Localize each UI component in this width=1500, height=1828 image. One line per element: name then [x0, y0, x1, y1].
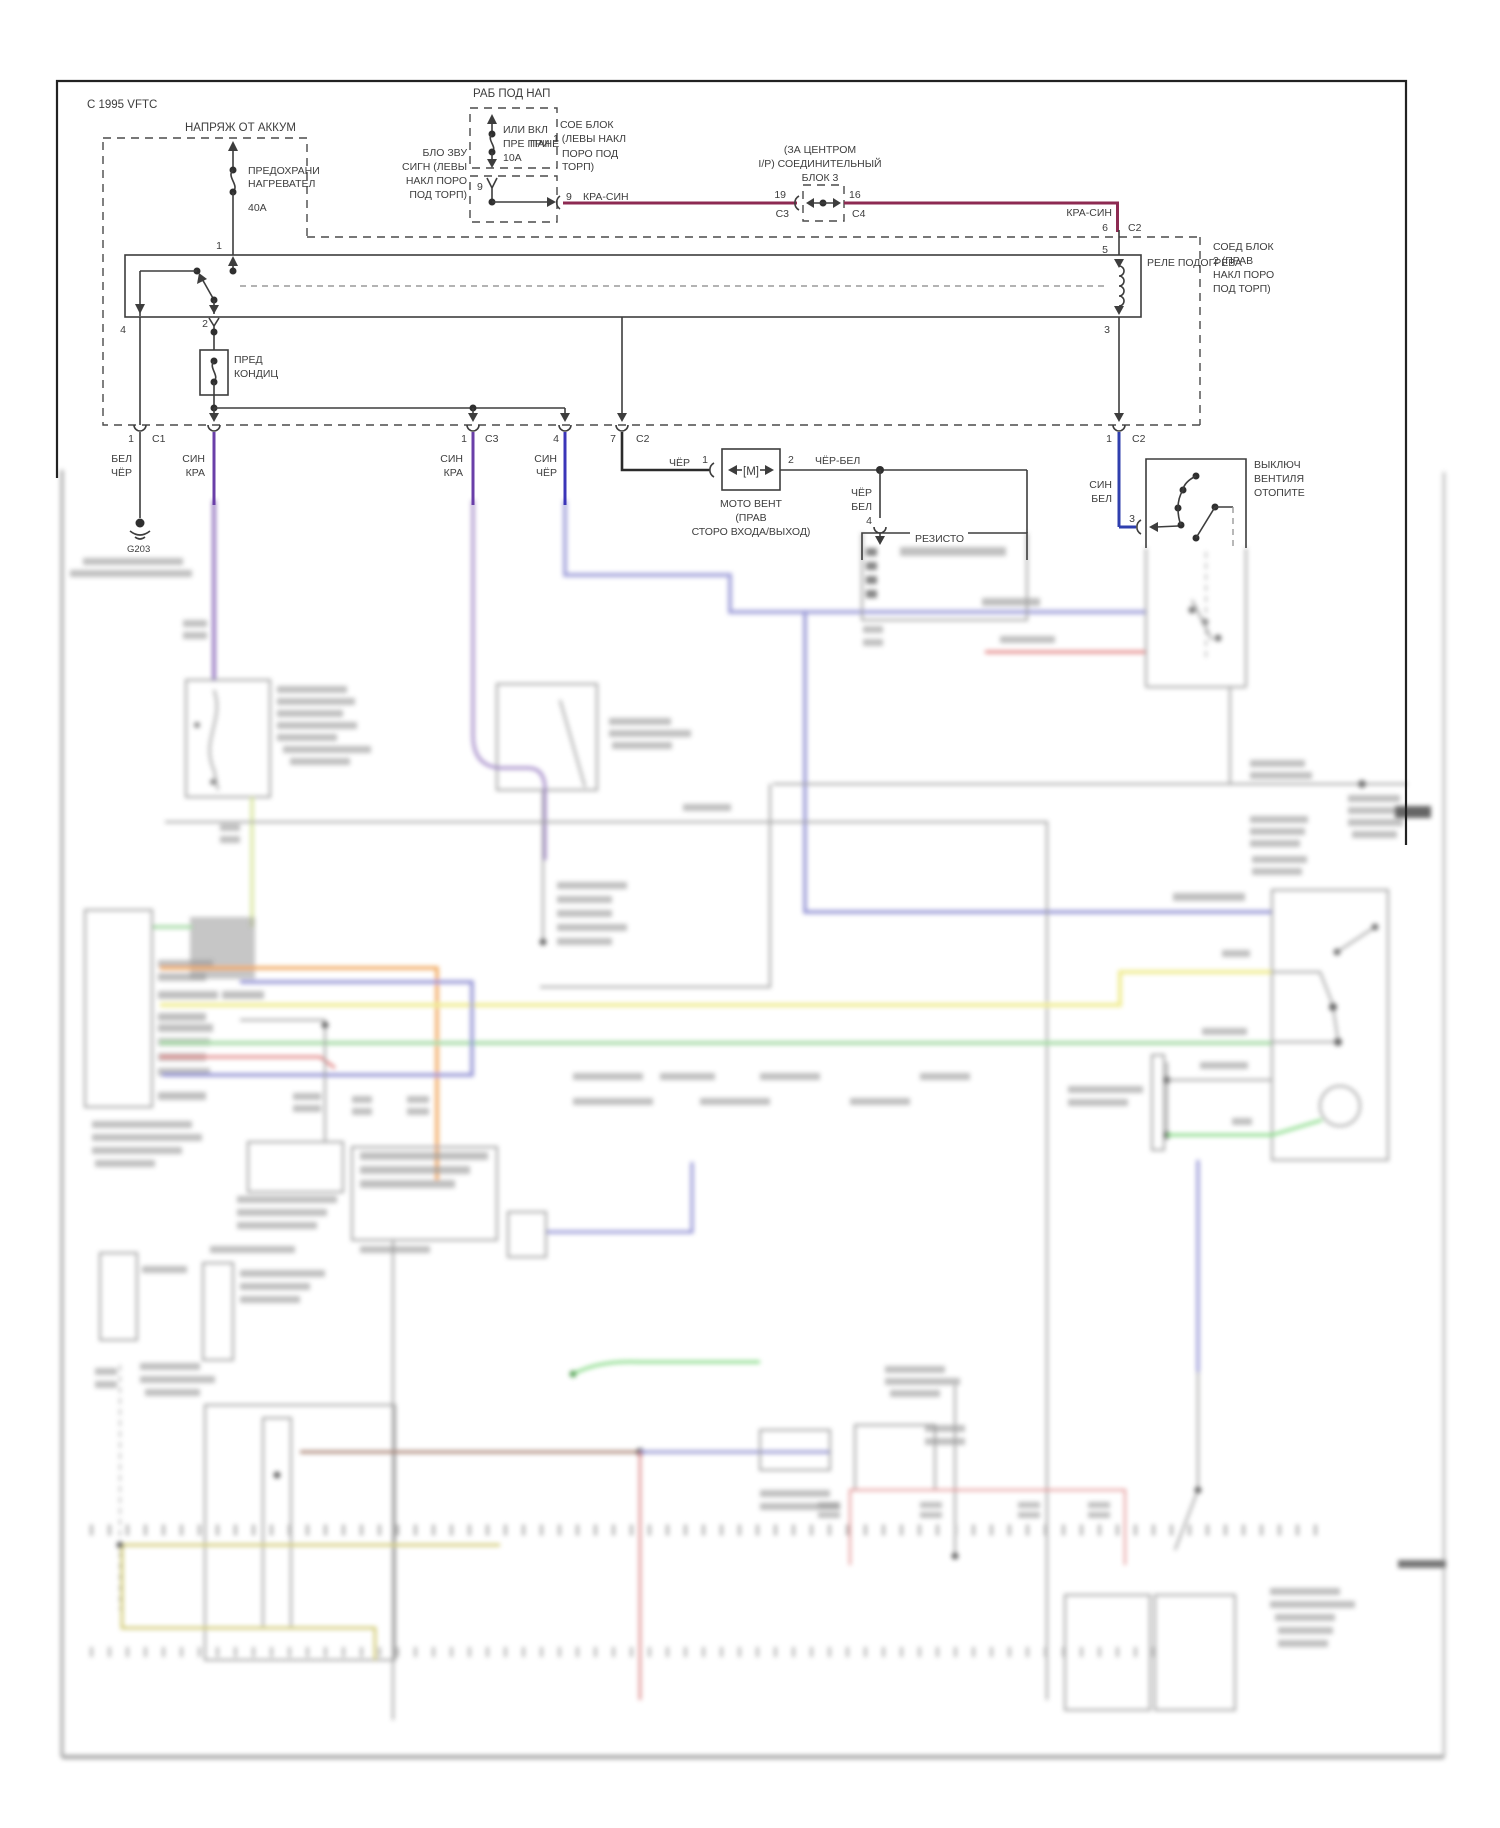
- svg-text:КРА: КРА: [444, 467, 463, 479]
- svg-text:1 (ЛЕВЫ НАКЛ: 1 (ЛЕВЫ НАКЛ: [553, 133, 626, 145]
- svg-text:ПРЕДОХРАНИ: ПРЕДОХРАНИ: [248, 165, 320, 177]
- wiring-diagram-page: С 1995 VFTC НАПРЯЖ ОТ АККУМ ПРЕДОХРАНИ Н…: [0, 0, 1500, 1828]
- pin-label: 4: [866, 515, 872, 527]
- wire-label-krasin: КРА-СИН: [1066, 207, 1112, 219]
- ground-id: G203: [127, 544, 150, 555]
- junction-block1-label: СОЕ БЛОК: [560, 119, 614, 131]
- svg-text:ВЕНТИЛЯ: ВЕНТИЛЯ: [1254, 473, 1304, 485]
- svg-text:I/P) СОЕДИНИТЕЛЬНЫЙ: I/P) СОЕДИНИТЕЛЬНЫЙ: [758, 157, 881, 170]
- pin-label: C3: [776, 208, 790, 220]
- wire-label: СИН: [182, 453, 205, 465]
- diagram-canvas: С 1995 VFTC НАПРЯЖ ОТ АККУМ ПРЕДОХРАНИ Н…: [0, 0, 1500, 1828]
- svg-text:БЛОК 3: БЛОК 3: [802, 172, 839, 184]
- ac-fuse-label: ПРЕД: [234, 354, 263, 366]
- sharp-upper-diagram: С 1995 VFTC НАПРЯЖ ОТ АККУМ ПРЕДОХРАНИ Н…: [57, 81, 1406, 845]
- fan-switch-label: ВЫКЛЮЧ: [1254, 459, 1301, 471]
- pin-label: 6: [1102, 222, 1108, 234]
- svg-text:40А: 40А: [248, 202, 267, 214]
- junction-block3-label: (ЗА ЦЕНТРОМ: [784, 144, 856, 156]
- svg-text:БЕЛ: БЕЛ: [851, 501, 872, 513]
- svg-text:КРА: КРА: [186, 467, 205, 479]
- wire-label: ЧЁР: [851, 487, 872, 499]
- page-title: С 1995 VFTC: [87, 99, 157, 111]
- pin-label: 4: [553, 433, 559, 445]
- wire-label: СИН: [1089, 479, 1112, 491]
- pin-label: 9: [566, 191, 572, 203]
- wire-label: ЧЁР: [669, 457, 690, 469]
- heater-fan-switch: [1146, 459, 1246, 548]
- svg-text:БЕЛ: БЕЛ: [1091, 493, 1112, 505]
- svg-text:ЧЁР: ЧЁР: [111, 467, 132, 479]
- motor-label: МОТО ВЕНТ: [720, 498, 783, 510]
- pin-label: 19: [774, 189, 786, 201]
- heater-relay: [125, 255, 1141, 317]
- resistor-label: РЕЗИСТО: [915, 533, 964, 545]
- blurred-lower-diagram: [62, 470, 1446, 1757]
- svg-text:СТОРО ВХОДА/ВЫХОД): СТОРО ВХОДА/ВЫХОД): [692, 526, 811, 538]
- pin-label: C2: [636, 433, 650, 445]
- battery-feed-label: НАПРЯЖ ОТ АККУМ: [185, 122, 296, 134]
- pin-label: 9: [477, 181, 483, 193]
- svg-text:ПОД ТОРП): ПОД ТОРП): [1213, 283, 1271, 295]
- pin-label: 16: [849, 189, 861, 201]
- pin-label: 1: [1106, 433, 1112, 445]
- wire-label: СИН: [440, 453, 463, 465]
- svg-text:СИГН (ЛЕВЫ: СИГН (ЛЕВЫ: [402, 161, 467, 173]
- pin-label: 4: [120, 324, 126, 336]
- svg-text:КОНДИЦ: КОНДИЦ: [234, 368, 278, 380]
- horn-block-box: [470, 176, 557, 222]
- page-border: [57, 81, 1406, 845]
- svg-text:ЧЁР: ЧЁР: [536, 467, 557, 479]
- svg-text:ПОРО ПОД: ПОРО ПОД: [562, 148, 618, 160]
- horn-block-label: БЛО ЗВУ: [422, 147, 467, 159]
- junction-block2-label: СОЕД БЛОК: [1213, 241, 1274, 253]
- pin-label: C4: [852, 208, 866, 220]
- pin-label: 2: [202, 318, 208, 330]
- svg-text:НАГРЕВАТЕЛ: НАГРЕВАТЕЛ: [248, 178, 316, 190]
- pin-label: 2: [788, 454, 794, 466]
- svg-text:(ПРАВ: (ПРАВ: [735, 512, 766, 524]
- pin-label: 1: [461, 433, 467, 445]
- pin-label: 1: [702, 454, 708, 466]
- svg-text:2 (ПРАВ: 2 (ПРАВ: [1213, 255, 1253, 267]
- heater-fuse-40a: ПРЕДОХРАНИ НАГРЕВАТЕЛ 40А: [228, 141, 320, 255]
- pane-fragment: ПАНЕ: [530, 138, 559, 150]
- motor-symbol: [М]: [743, 466, 759, 478]
- wire-label-krasin: КРА-СИН: [583, 191, 629, 203]
- pin-label: 5: [1102, 244, 1108, 256]
- pin-label: C1: [152, 433, 166, 445]
- pin-label: 3: [1104, 324, 1110, 336]
- svg-text:НАКЛ ПОРО: НАКЛ ПОРО: [406, 175, 467, 187]
- blower-motor: [М]: [722, 449, 780, 490]
- pin-label: C2: [1128, 222, 1142, 234]
- connector-terminal: [557, 196, 560, 209]
- ac-compressor-fuse: [200, 350, 228, 408]
- svg-text:ОТОПИТЕ: ОТОПИТЕ: [1254, 487, 1305, 499]
- pin-label: C2: [1132, 433, 1146, 445]
- pin-label: 1: [128, 433, 134, 445]
- wire-label: СИН: [534, 453, 557, 465]
- pin-label: 7: [610, 433, 616, 445]
- wire-label: БЕЛ: [111, 453, 132, 465]
- ground-symbol: [130, 519, 150, 540]
- svg-text:ИЛИ ВКЛ: ИЛИ ВКЛ: [503, 124, 548, 136]
- svg-text:НАКЛ ПОРО: НАКЛ ПОРО: [1213, 269, 1274, 281]
- pin-label: 1: [216, 240, 222, 252]
- pin-label: C3: [485, 433, 499, 445]
- svg-text:ТОРП): ТОРП): [562, 161, 594, 173]
- run-voltage-label: РАБ ПОД НАП: [473, 88, 550, 100]
- svg-text:ПОД ТОРП): ПОД ТОРП): [409, 189, 467, 201]
- pin-label: 3: [1129, 513, 1135, 525]
- wire-label: ЧЁР-БЕЛ: [815, 455, 860, 467]
- svg-text:10А: 10А: [503, 152, 522, 164]
